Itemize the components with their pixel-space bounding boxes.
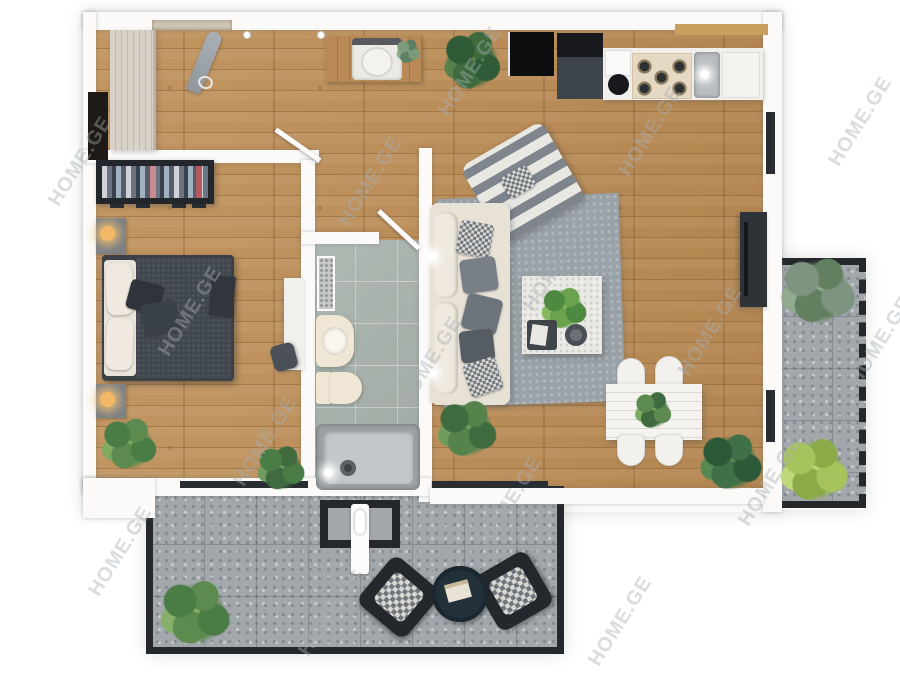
- burner-2: [671, 58, 688, 75]
- balcony-railing-strip: [152, 20, 232, 30]
- window-frame-right-bottom: [766, 390, 775, 442]
- sofa-back-cushion-1: [434, 212, 458, 298]
- tray-book: [530, 324, 549, 346]
- wall-sconce-1: [428, 252, 437, 261]
- bed-folded-blanket: [208, 275, 235, 317]
- wall-bottom-left-notch: [83, 478, 155, 518]
- desk-plant: [396, 38, 420, 66]
- fridge-top: [557, 33, 603, 57]
- wall-sconce-2: [428, 368, 437, 377]
- ceiling-light-1: [243, 31, 251, 39]
- ceiling-light-2: [317, 31, 325, 39]
- window-frame-living-terrace: [432, 481, 548, 488]
- burner-3: [653, 69, 670, 86]
- watermark: HOME.GE: [584, 572, 657, 670]
- bathtub-faucet: [324, 468, 333, 477]
- clothes-pink: [150, 166, 156, 198]
- terrace-plant: [158, 578, 232, 650]
- rack-foot-3: [172, 204, 186, 208]
- counter-box: [605, 50, 631, 76]
- coffee-table-vase: [565, 324, 587, 346]
- burner-4: [636, 80, 653, 97]
- dining-chair-3: [617, 434, 645, 466]
- wall-left: [83, 12, 96, 490]
- sofa-back-cushion-2: [434, 302, 458, 394]
- bedroom-plant-right: [256, 444, 306, 494]
- window-frame-right-top: [766, 112, 775, 174]
- kettle: [608, 74, 629, 95]
- washing-machine-lid: [361, 47, 393, 77]
- living-plant-left: [436, 398, 498, 462]
- tv-screen-line: [744, 222, 748, 296]
- dining-centerpiece-plant: [634, 390, 672, 432]
- kitchen-countertop-strip: [675, 24, 768, 35]
- sink-faucet: [700, 70, 709, 79]
- washing-machine-panel: [352, 38, 402, 45]
- wall-bath-top: [301, 232, 379, 244]
- living-plant-right: [698, 432, 764, 494]
- bath-radiator: [317, 256, 335, 311]
- dining-chair-4: [655, 434, 683, 466]
- bed-pillow-2: [105, 318, 134, 371]
- bath-sink-basin: [322, 327, 348, 355]
- bedroom-plant-left: [100, 416, 158, 474]
- balcony-plant-top: [778, 256, 858, 328]
- terrace-door-handle: [355, 510, 365, 534]
- hall-big-plant: [443, 28, 501, 96]
- kitchen-black-unit: [508, 32, 554, 76]
- closet-niche: [88, 92, 108, 160]
- rack-foot-4: [192, 204, 206, 208]
- rack-foot-2: [136, 204, 150, 208]
- sofa-pillow-gray-1: [459, 256, 499, 295]
- nightstand-lamp-bottom: [100, 392, 115, 407]
- rack-foot-1: [110, 204, 124, 208]
- bathtub-inner: [323, 430, 413, 484]
- kitchen-cabinet: [722, 52, 760, 98]
- burner-1: [636, 58, 653, 75]
- wardrobe: [110, 30, 156, 150]
- floor-plan: HOME.GE HOME.GE HOME.GE HOME.GE HOME.GE …: [0, 0, 900, 677]
- toilet-bowl: [330, 372, 362, 404]
- bathtub-drain: [340, 460, 356, 476]
- sofa-pillow-houndstooth-1: [455, 219, 494, 258]
- nightstand-lamp-top: [100, 226, 115, 241]
- clothes-red: [196, 166, 202, 198]
- watermark: HOME.GE: [824, 72, 897, 170]
- burner-5: [671, 80, 688, 97]
- balcony-plant-bottom: [778, 436, 850, 506]
